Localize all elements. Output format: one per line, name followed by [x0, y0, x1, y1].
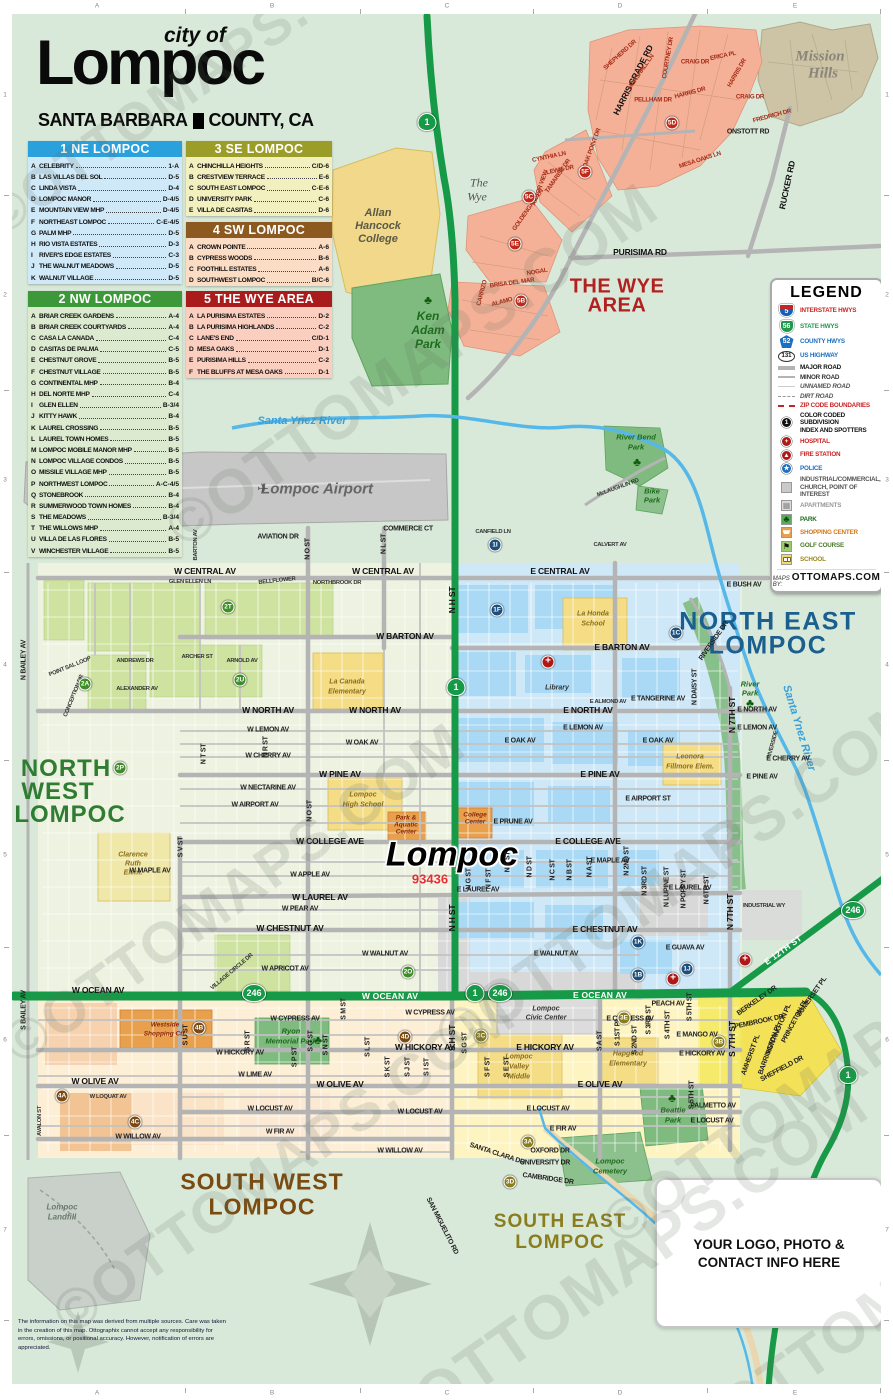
highway-shield-1: 1	[466, 984, 485, 1002]
n-7th-st-label: N 7TH ST	[727, 697, 737, 733]
legend-item-label: MAJOR ROAD	[800, 364, 841, 371]
e-central-av-label: E CENTRAL AV	[530, 566, 589, 576]
index-row-gridref: B/C-6	[312, 277, 329, 284]
w-pine-av-label: W PINE AV	[319, 769, 361, 779]
commerce-ct-label: COMMERCE CT	[383, 526, 433, 533]
zip-line-wrap	[777, 405, 796, 407]
index-row-leader	[95, 279, 166, 280]
spotter-3b: 3B	[713, 1036, 726, 1049]
spotter-1c: 1C	[670, 627, 683, 640]
interstate-shield-wrap: 5	[777, 304, 796, 317]
lompoc-airport-label: Lompoc Airport	[261, 481, 373, 498]
spotter-1f: 1F	[491, 604, 504, 617]
index-row-leader	[96, 340, 166, 341]
legend-item-label: COLOR CODED SUBDIVISIONINDEX AND SPOTTER…	[800, 412, 876, 434]
index-row-letter: U	[31, 536, 39, 543]
index-row-leader	[110, 440, 166, 441]
index-row-crown-pointe: ACROWN POINTEA-6	[186, 240, 332, 251]
index-row-gridref: C/D-6	[312, 163, 329, 170]
e-airport-st-label: E AIRPORT ST	[625, 796, 670, 803]
index-row-northeast-lompoc: FNORTHEAST LOMPOCC-E-4/5	[28, 214, 182, 225]
clarence-label: Clarence	[118, 852, 148, 859]
e-oak-av-label: E OAK AV	[643, 738, 674, 745]
index-row-letter: T	[31, 525, 39, 532]
avalon-st-label: AVALON ST	[37, 1106, 43, 1136]
ruler-tick	[4, 195, 9, 196]
hospital-icon: +	[781, 436, 792, 447]
index-row-gridref: D-5	[168, 275, 179, 282]
index-row-name: CRESTVIEW TERRACE	[197, 174, 265, 181]
legend-item-hospital: +HOSPITAL	[777, 436, 876, 447]
index-row-villa-de-las-flores: UVILLA DE LAS FLORESB-5	[28, 532, 182, 543]
index-row-leader	[113, 257, 166, 258]
index-row-gridref: B-5	[168, 425, 179, 432]
spotter-5b: 5B	[515, 295, 528, 308]
index-row-gridref: D-4/5	[163, 207, 179, 214]
hospital-icon: +	[739, 954, 752, 967]
index-row-leader	[285, 373, 317, 374]
index-row-letter: E	[31, 207, 39, 214]
s-h-st-label: S H ST	[447, 1025, 457, 1051]
grid-row-4-right: 4	[885, 662, 889, 669]
e-lemon-av-label: E LEMON AV	[737, 725, 777, 732]
index-row-letter: E	[189, 207, 197, 214]
mclaughlin-rd-label: McLAUGHLIN RD	[596, 478, 639, 499]
harris-dr-label: HARRIS DR	[674, 86, 706, 101]
index-row-leader	[100, 384, 167, 385]
legend-item-county-hwys: 52COUNTY HWYS	[777, 335, 876, 348]
industrial-icon	[781, 482, 792, 493]
grid-row-2-right: 2	[885, 292, 889, 299]
spotter-1k: 1K	[632, 936, 645, 949]
index-row-letter: B	[189, 324, 197, 331]
index-row-gridref: D-1	[318, 369, 329, 376]
ken-label: Ken	[417, 309, 440, 323]
index-row-leader	[254, 259, 316, 260]
index-row-letter: C	[189, 335, 197, 342]
contact-box: YOUR LOGO, PHOTO & CONTACT INFO HERE	[655, 1178, 881, 1328]
highway-shield-246: 246	[242, 984, 266, 1002]
e-almond-av-label: E ALMOND AV	[590, 699, 626, 705]
index-row-linda-vista: CLINDA VISTAD-4	[28, 181, 182, 192]
s-e-st-label: S E ST	[504, 1057, 511, 1077]
n-c-st-label: N C ST	[550, 859, 557, 880]
n-h-st-label: N H ST	[447, 587, 457, 614]
e-north-av-label: E NORTH AV	[563, 705, 612, 715]
e-locust-av-label: E LOCUST AV	[691, 1118, 734, 1125]
legend-item-industrial-commercial: INDUSTRIAL/COMMERCIAL,CHURCH, POINT OF I…	[777, 476, 876, 498]
index-row-gridref: B-3/4	[163, 402, 179, 409]
index-row-letter: I	[31, 402, 39, 409]
fredrich-dr-label: FREDRICH DR	[752, 108, 792, 125]
map-title-block: city of Lompoc SANTA BARBARA COUNTY, CA	[36, 26, 346, 138]
n-7th-st-label: N 7TH ST	[725, 894, 735, 930]
page-title: Lompoc	[36, 32, 263, 95]
index-row-letter: F	[31, 369, 39, 376]
index-row-letter: P	[31, 481, 39, 488]
index-row-name: SOUTHWEST LOMPOC	[197, 277, 265, 284]
e-chestnut-av-label: E CHESTNUT AV	[573, 924, 638, 934]
e-ocean-av-label: E OCEAN AV	[573, 990, 627, 1000]
map-sheet: AABBCCDDEE11223344556677	[0, 0, 893, 1400]
index-row-leader	[265, 167, 310, 168]
n-lupine-st-label: N LUPINE ST	[664, 867, 671, 907]
index-table-header-2: 2 NW LOMPOC	[28, 291, 182, 307]
center-label: Center	[465, 819, 486, 826]
e-pine-av-label: E PINE AV	[580, 769, 619, 779]
index-row-letter: D	[189, 277, 197, 284]
index-row-leader	[106, 212, 161, 213]
index-row-crestview-terrace: BCRESTVIEW TERRACEE-6	[186, 170, 332, 181]
index-row-laurel-town-homes: LLAUREL TOWN HOMESB-5	[28, 432, 182, 443]
index-row-leader	[276, 328, 316, 329]
legend-item-shopping-center: SHOPPING CENTER	[777, 527, 876, 538]
index-row-lompoc-mobile-manor-mhp: MLOMPOC MOBILE MANOR MHPB-5	[28, 443, 182, 454]
n-o-st-label: N O ST	[307, 800, 314, 822]
index-row-gridref: A-6	[318, 244, 329, 251]
index-row-del-norte-mhp: HDEL NORTE MHPC-4	[28, 387, 182, 398]
ruler-tick	[4, 760, 9, 761]
grid-row-5-right: 5	[885, 852, 889, 859]
index-row-letter: G	[31, 230, 39, 237]
legend-item-label: PARK	[800, 516, 817, 523]
legend-item-label: US HIGHWAY	[800, 352, 838, 359]
index-row-name: UNIVERSITY PARK	[197, 196, 252, 203]
index-row-letter: H	[31, 241, 39, 248]
index-row-name: CHINCHILLA HEIGHTS	[197, 163, 263, 170]
index-row-the-bluffs-at-mesa-oaks: FTHE BLUFFS AT MESA OAKSD-1	[186, 364, 332, 375]
index-row-continental-mhp: GCONTINENTAL MHPB-4	[28, 376, 182, 387]
legend-title: LEGEND	[777, 284, 876, 302]
park-tree-icon: ♣	[781, 514, 792, 525]
index-row-gridref: E-6	[319, 174, 329, 181]
w-willow-av-label: W WILLOW AV	[115, 1134, 160, 1141]
park-label: Park	[415, 337, 441, 351]
index-row-palm-mhp: GPALM MHPD-5	[28, 226, 182, 237]
e-guava-av-label: E GUAVA AV	[666, 945, 704, 952]
w-olive-av-label: W OLIVE AV	[316, 1079, 363, 1089]
tree-icon: ♣	[746, 696, 754, 710]
s-a-st-label: S A ST	[597, 1031, 604, 1051]
w-barton-av-label: W BARTON AV	[376, 631, 434, 641]
index-row-gridref: B-4	[168, 380, 179, 387]
index-row-name: NORTHEAST LOMPOC	[39, 219, 106, 226]
hapgood-label: Hapgood	[613, 1051, 643, 1058]
index-row-letter: A	[189, 244, 197, 251]
point-sal-loop-label: POINT SAL LOOP	[48, 656, 92, 678]
zip-boundary-icon	[778, 405, 795, 407]
library-label: Library	[545, 685, 569, 692]
andrews-dr-label: ANDREWS DR	[117, 658, 154, 664]
index-row-letter: C	[31, 335, 39, 342]
index-row-la-purisima-highlands: BLA PURISIMA HIGHLANDSC-2	[186, 320, 332, 331]
index-row-gridref: C-3	[168, 252, 179, 259]
n-o-st-label: N O ST	[305, 538, 312, 560]
e-college-ave-label: E COLLEGE AVE	[555, 836, 620, 846]
index-row-letter: D	[31, 196, 39, 203]
n-h-st-label: N H ST	[447, 905, 457, 932]
index-row-leader	[79, 418, 166, 419]
legend-item-zip-code-boundaries: ZIP CODE BOUNDARIES	[777, 402, 876, 409]
n-l-st-label: N L ST	[381, 534, 388, 554]
lompoc-label: LOMPOC	[709, 632, 828, 661]
index-row-leader	[108, 223, 154, 224]
s-u-st-label: S U ST	[183, 1025, 190, 1046]
e-hickory-av-label: E HICKORY AV	[516, 1042, 574, 1052]
index-row-kitty-hawk: JKITTY HAWKB-4	[28, 409, 182, 420]
subdivision-spotter-wrap: 1	[777, 417, 796, 428]
lompoc-label: Lompoc	[532, 1006, 559, 1013]
index-row-letter: B	[189, 255, 197, 262]
index-row-leader	[236, 340, 310, 341]
legend-item-us-highway: 131US HIGHWAY	[777, 351, 876, 362]
index-row-las-villas-del-sol: BLAS VILLAS DEL SOLD-5	[28, 170, 182, 181]
school-book-icon	[781, 554, 792, 565]
w-cypress-av-label: W CYPRESS AV	[270, 1016, 319, 1023]
grid-row-1-left: 1	[3, 92, 7, 99]
college-label: College	[358, 233, 398, 245]
legend-item-label: HOSPITAL	[800, 438, 830, 445]
civic-center-label: Civic Center	[526, 1015, 567, 1022]
s-f-st-label: S F ST	[485, 1057, 492, 1077]
index-row-chestnut-village: FCHESTNUT VILLAGEB-5	[28, 364, 182, 375]
index-row-gridref: C-E-4/5	[156, 219, 179, 226]
index-row-leader	[109, 541, 167, 542]
lompoc-label: Lompoc	[46, 1203, 77, 1212]
ruler-tick	[880, 1388, 881, 1393]
golf-flag-icon: ⚑	[781, 541, 792, 552]
landfill-label: Landfill	[48, 1213, 76, 1222]
county-shield-icon: 52	[780, 335, 794, 348]
brisa-del-mar-label: BRISA DEL MAR	[489, 276, 534, 289]
index-row-gridref: 1-A	[168, 163, 179, 170]
w-ocean-av-label: W OCEAN AV	[362, 991, 418, 1001]
spotter-1i: 1I	[489, 539, 502, 552]
n-r-st-label: N R ST	[263, 736, 270, 757]
grid-col-a-top: A	[95, 3, 99, 10]
legend-item-minor-road: MINOR ROAD	[777, 374, 876, 381]
apartments-wrap: ▦	[777, 500, 796, 511]
school-wrap	[777, 554, 796, 565]
spotter-4b: 4B	[193, 1022, 206, 1035]
index-row-leader	[76, 167, 167, 168]
w-loquat-av-label: W LOQUAT AV	[90, 1094, 127, 1100]
interstate-shield-icon: 5	[779, 304, 794, 317]
index-row-winchester-village: VWINCHESTER VILLAGEB-5	[28, 543, 182, 554]
ruler-tick	[707, 1388, 708, 1393]
alexander-av-label: ALEXANDER AV	[116, 686, 158, 692]
ruler-tick	[533, 1388, 534, 1393]
index-row-name: SUMMERWOOD TOWN HOMES	[39, 503, 131, 510]
index-row-gridref: D-6	[318, 207, 329, 214]
index-row-missile-village-mhp: OMISSILE VILLAGE MHPB-5	[28, 465, 182, 476]
index-row-letter: B	[31, 174, 39, 181]
ruler-tick	[884, 1320, 889, 1321]
index-row-gridref: C-6	[318, 196, 329, 203]
index-row-name: MISSILE VILLAGE MHP	[39, 469, 107, 476]
legend-item-label: STATE HWYS	[800, 323, 838, 330]
index-row-name: CONTINENTAL MHP	[39, 380, 98, 387]
index-row-name: LA PURISIMA HIGHLANDS	[197, 324, 274, 331]
s-bailey-av-label: S BAILEY AV	[21, 990, 28, 1030]
e-barton-av-label: E BARTON AV	[594, 642, 649, 652]
spotter-4a: 4A	[56, 1090, 69, 1103]
w-apricot-av-label: W APRICOT AV	[261, 966, 308, 973]
n-f-st-label: N F ST	[486, 869, 493, 889]
fillmore-elem-label: Fillmore Elem.	[666, 764, 714, 771]
spotter-5e: 5E	[509, 238, 522, 251]
index-row-letter: R	[31, 503, 39, 510]
index-row-purisima-hills: EPURISIMA HILLSC-2	[186, 353, 332, 364]
index-row-villa-de-casitas: EVILLA DE CASITASD-6	[186, 203, 332, 214]
palmetto-av-label: PALMETTO AV	[690, 1103, 735, 1110]
index-row-lompoc-manor: DLOMPOC MANORD-4/5	[28, 192, 182, 203]
index-row-name: NORTHWEST LOMPOC	[39, 481, 107, 488]
hills-label: Hills	[808, 66, 838, 83]
highway-shield-1: 1	[447, 678, 466, 696]
major-road-wrap	[777, 366, 796, 370]
hospital-icon: +	[667, 973, 680, 986]
index-row-the-meadows: STHE MEADOWSB-3/4	[28, 510, 182, 521]
grid-row-7-right: 7	[885, 1227, 889, 1234]
courtney-dr-label: COURTNEY DR	[661, 37, 675, 80]
index-row-name: CHESTNUT VILLAGE	[39, 369, 101, 376]
legend-item-label: SCHOOL	[800, 556, 826, 563]
n-b-st-label: N B ST	[567, 859, 574, 880]
index-row-foothill-estates: CFOOTHILL ESTATESA-6	[186, 262, 332, 273]
index-row-leader	[134, 451, 167, 452]
index-row-the-walnut-meadows: JTHE WALNUT MEADOWSD-5	[28, 259, 182, 270]
index-row-name: PALM MHP	[39, 230, 71, 237]
e-olive-av-label: E OLIVE AV	[578, 1079, 623, 1089]
index-row-name: LANE'S END	[197, 335, 234, 342]
w-airport-av-label: W AIRPORT AV	[231, 802, 278, 809]
park-label: Park	[628, 443, 644, 452]
w-central-av-label: W CENTRAL AV	[174, 566, 236, 576]
index-row-gridref: B-5	[168, 369, 179, 376]
index-row-letter: E	[31, 357, 39, 364]
s-4th-st-label: S 4TH ST	[665, 1011, 672, 1039]
index-row-gridref: B-5	[168, 458, 179, 465]
index-row-gridref: D-2	[318, 313, 329, 320]
index-row-leader	[78, 190, 166, 191]
valley-label: Valley	[509, 1064, 529, 1071]
legend-item-state-hwys: 56STATE HWYS	[777, 320, 876, 333]
index-row-mesa-oaks: DMESA OAKSD-1	[186, 342, 332, 353]
w-apple-av-label: W APPLE AV	[290, 872, 330, 879]
grid-col-e-top: E	[793, 3, 797, 10]
index-row-name: WINCHESTER VILLAGE	[39, 548, 108, 555]
golf-course-wrap: ⚑	[777, 541, 796, 552]
aquatic-label: Aquatic	[394, 822, 418, 829]
n-d-st-label: N D ST	[527, 856, 534, 877]
index-row-gridref: B-5	[168, 469, 179, 476]
tree-icon: ♣	[424, 293, 432, 307]
us-shield-wrap: 131	[777, 351, 796, 362]
index-row-leader	[116, 268, 167, 269]
s-p-st-label: S P ST	[292, 1047, 299, 1067]
shopping-ctr-label: Shopping Ctr.	[144, 1031, 187, 1038]
index-row-mountain-view-mhp: EMOUNTAIN VIEW MHPD-4/5	[28, 203, 182, 214]
index-row-leader	[103, 373, 167, 374]
legend-item-label: INDUSTRIAL/COMMERCIAL,CHURCH, POINT OF I…	[800, 476, 881, 498]
w-olive-av-label: W OLIVE AV	[71, 1076, 118, 1086]
index-row-gridref: C-4	[168, 391, 179, 398]
s-j-st-label: S J ST	[405, 1057, 412, 1077]
s-l-st-label: S L ST	[365, 1037, 372, 1057]
legend-item-label: DIRT ROAD	[800, 393, 833, 400]
lompoc-label: Lompoc	[349, 792, 376, 799]
center-label: Center	[396, 829, 417, 836]
index-row-leader	[99, 246, 166, 247]
university-dr-label: UNIVERSITY DR	[520, 1160, 570, 1167]
e-walnut-av-label: E WALNUT AV	[534, 951, 578, 958]
highway-shield-1: 1	[839, 1066, 858, 1084]
wye-label: Wye	[467, 190, 487, 205]
s-v-st-label: S V ST	[178, 837, 185, 857]
index-row-name: LAUREL CROSSING	[39, 425, 98, 432]
index-row-gridref: A-4	[168, 324, 179, 331]
index-row-south-east-lompoc: CSOUTH EAST LOMPOCC-E-6	[186, 181, 332, 192]
grid-col-a-bottom: A	[95, 1390, 99, 1397]
legend-item-label: APARTMENTS	[800, 502, 841, 509]
bellflower-label: BELLFLOWER	[258, 576, 296, 586]
dirt-road-icon	[778, 396, 795, 397]
la-canada-label: La Canada	[329, 679, 364, 686]
e-laurel-av-label: E LAUREL AV	[457, 887, 499, 894]
map-frame: THE WYEAREANORTH EASTLOMPOCNORTHWESTLOMP…	[12, 14, 881, 1384]
index-row-name: PURISIMA HILLS	[197, 357, 246, 364]
index-row-letter: N	[31, 458, 39, 465]
n-poppy-st-label: N POPPY ST	[681, 870, 688, 909]
w-pear-av-label: W PEAR AV	[282, 906, 318, 913]
index-row-leader	[100, 351, 166, 352]
index-row-gridref: B-4	[168, 413, 179, 420]
grid-row-5-left: 5	[3, 852, 7, 859]
index-row-name: CROWN POINTE	[197, 244, 245, 251]
index-row-university-park: DUNIVERSITY PARKC-6	[186, 192, 332, 203]
ryon-label: Ryon	[282, 1027, 301, 1036]
fire-station-wrap: ▲	[777, 450, 796, 461]
south-west-label: SOUTH WEST	[180, 1169, 343, 1196]
index-row-leader	[267, 178, 317, 179]
index-row-leader	[236, 351, 316, 352]
index-row-chinchilla-heights: ACHINCHILLA HEIGHTSC/D-6	[186, 159, 332, 170]
index-row-letter: J	[31, 413, 39, 420]
spotter-5f: 5F	[579, 166, 592, 179]
spotter-4d: 4D	[399, 1031, 412, 1044]
index-table-sw-lompoc: 4 SW LOMPOCACROWN POINTEA-6BCYPRESS WOOD…	[186, 222, 332, 286]
lompoc-label: Lompoc	[595, 1157, 624, 1166]
index-row-name: MESA OAKS	[197, 346, 234, 353]
harris-dr-label: HARRIS DR	[726, 58, 748, 89]
river-bend-label: River Bend	[616, 433, 656, 442]
index-row-briar-creek-gardens: ABRIAR CREEK GARDENSA-4	[28, 309, 182, 320]
grid-row-3-right: 3	[885, 477, 889, 484]
peach-av-label: PEACH AV	[652, 1001, 685, 1008]
legend-item-fire-station: ▲FIRE STATION	[777, 450, 876, 461]
index-row-name: BRIAR CREEK COURTYARDS	[39, 324, 126, 331]
index-row-glen-ellen: IGLEN ELLENB-3/4	[28, 398, 182, 409]
w-hickory-av-label: W HICKORY AV	[216, 1050, 264, 1057]
state-shield-wrap: 56	[777, 320, 796, 333]
index-row-letter: V	[31, 548, 39, 555]
index-row-letter: D	[31, 346, 39, 353]
fire-station-icon: ▲	[781, 450, 792, 461]
s-k-st-label: S K ST	[385, 1057, 392, 1078]
spotter-1j: 1J	[681, 963, 694, 976]
index-row-name: GLEN ELLEN	[39, 402, 78, 409]
